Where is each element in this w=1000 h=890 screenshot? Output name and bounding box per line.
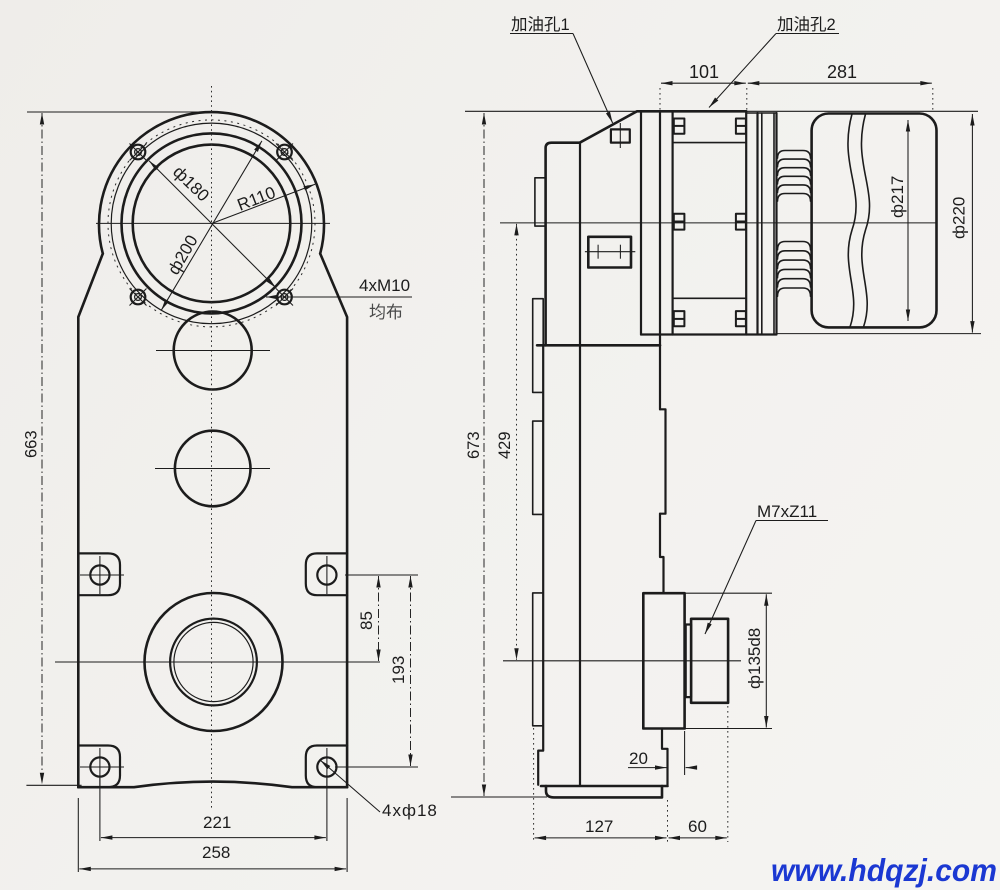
svg-text:加油孔2: 加油孔2 xyxy=(777,15,836,34)
svg-text:M7xZ11: M7xZ11 xyxy=(757,502,817,521)
svg-text:281: 281 xyxy=(827,62,857,82)
svg-text:4xф18: 4xф18 xyxy=(382,801,438,820)
svg-text:221: 221 xyxy=(203,813,231,832)
svg-text:4xM10: 4xM10 xyxy=(359,276,410,295)
svg-text:ф135d8: ф135d8 xyxy=(745,628,764,689)
svg-text:429: 429 xyxy=(496,431,514,459)
svg-text:258: 258 xyxy=(202,843,230,862)
svg-text:R110: R110 xyxy=(235,183,279,215)
svg-text:193: 193 xyxy=(389,656,408,684)
svg-text:ф220: ф220 xyxy=(950,197,969,239)
svg-text:127: 127 xyxy=(585,817,613,836)
svg-text:ф217: ф217 xyxy=(888,176,907,218)
svg-text:101: 101 xyxy=(689,62,719,82)
svg-text:60: 60 xyxy=(688,817,707,836)
svg-text:85: 85 xyxy=(357,611,376,630)
svg-text:ф180: ф180 xyxy=(169,162,213,205)
svg-text:www.hdqzj.com: www.hdqzj.com xyxy=(771,852,997,888)
svg-text:ф200: ф200 xyxy=(164,232,202,278)
svg-text:663: 663 xyxy=(23,430,41,458)
svg-text:均布: 均布 xyxy=(369,303,403,322)
svg-text:20: 20 xyxy=(629,749,648,768)
svg-text:673: 673 xyxy=(465,431,483,459)
svg-text:加油孔1: 加油孔1 xyxy=(511,15,570,34)
